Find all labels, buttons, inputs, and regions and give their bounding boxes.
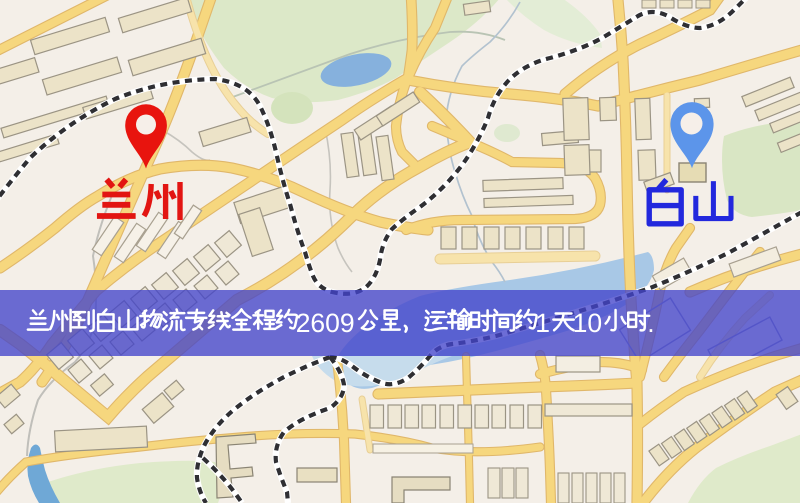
svg-text:2609: 2609 <box>296 308 355 338</box>
svg-text:10: 10 <box>573 308 602 338</box>
svg-text:.: . <box>647 308 654 338</box>
svg-text:1: 1 <box>535 308 550 338</box>
